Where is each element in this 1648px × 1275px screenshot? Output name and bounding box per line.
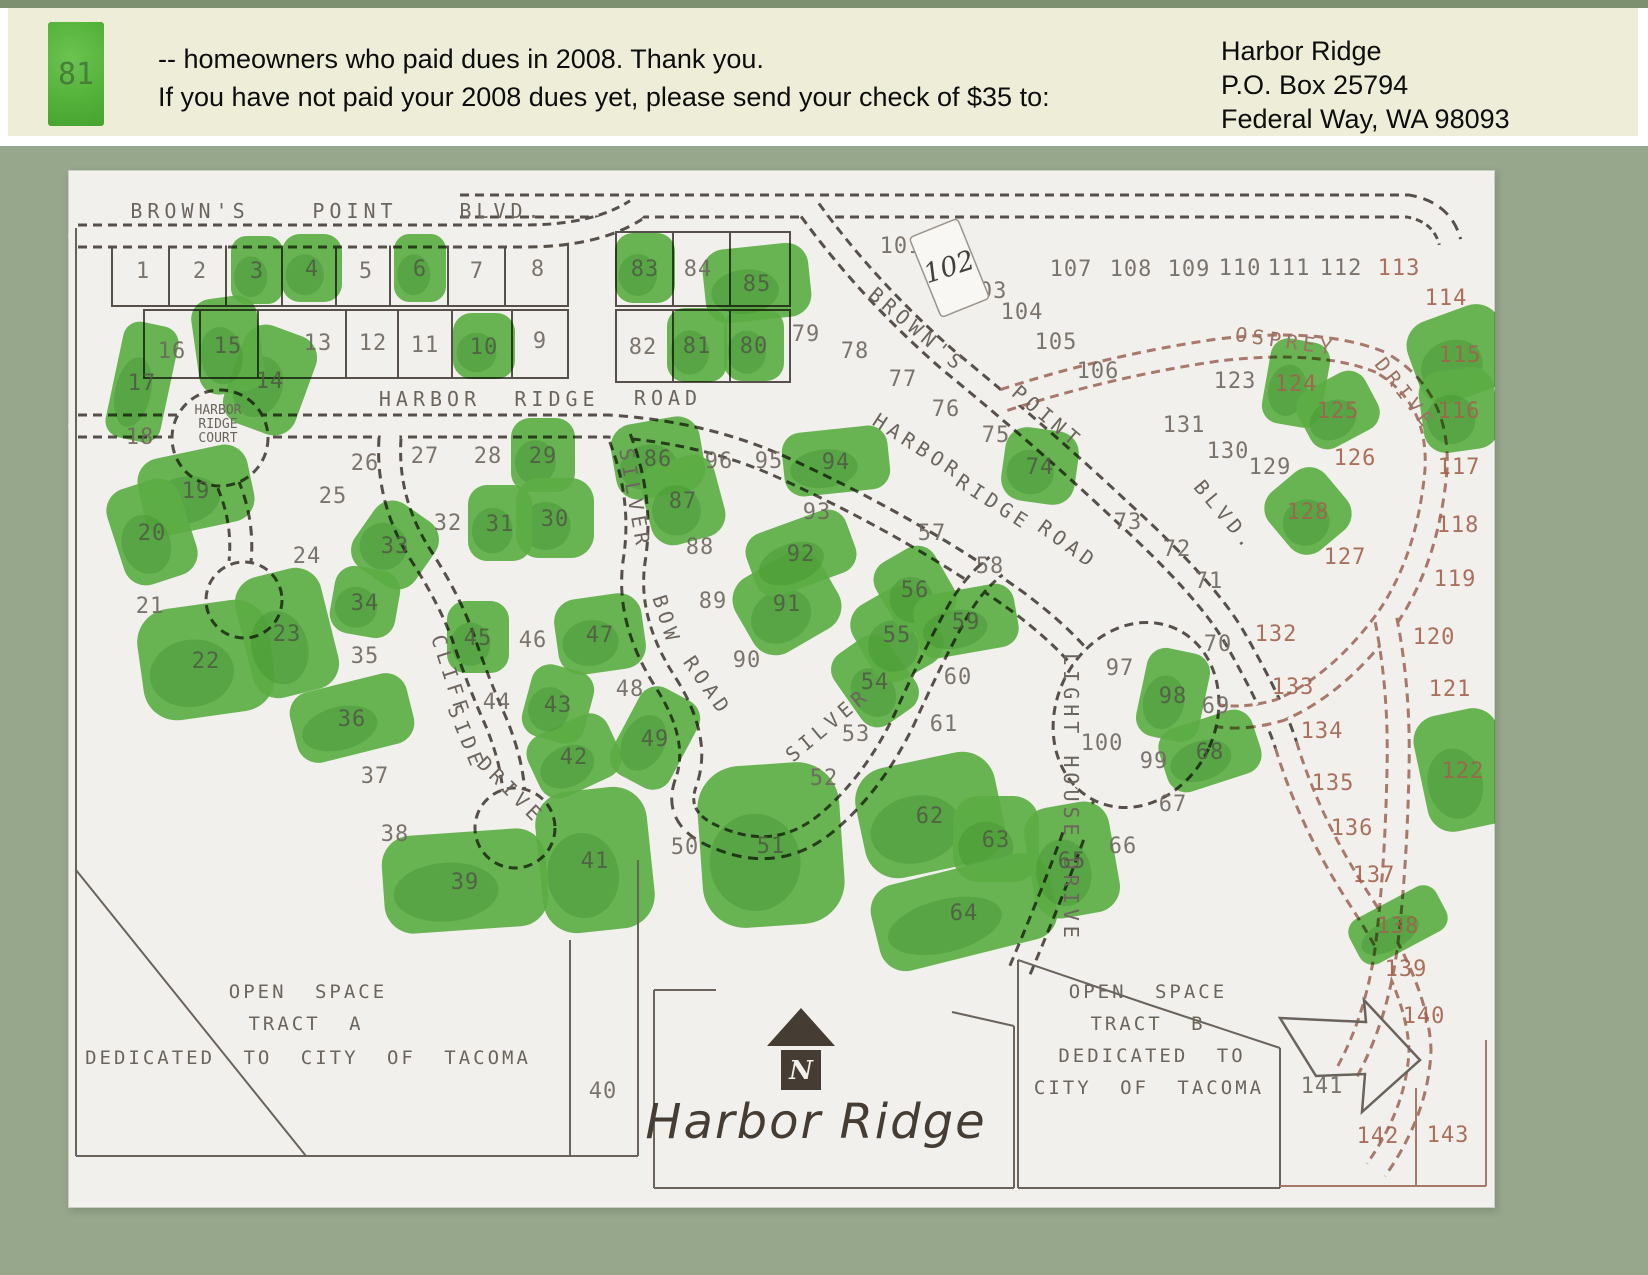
street-label: BROWN'S [130,199,249,223]
lot-number-50: 50 [671,835,700,860]
lot-number-91: 91 [773,592,802,617]
lot-number-124: 124 [1275,372,1318,397]
lot-number-23: 23 [273,622,302,647]
lot-number-83: 83 [631,257,660,282]
street-label: RIDGE [514,387,599,411]
lot-number-19: 19 [182,479,211,504]
lot-number-137: 137 [1353,863,1396,888]
lot-number-135: 135 [1312,771,1355,796]
lot-number-33: 33 [381,534,410,559]
lot-number-27: 27 [411,444,440,469]
lot-number-140: 140 [1403,1004,1446,1029]
open-space-label: TRACT B [1090,1013,1205,1035]
lot-number-49: 49 [641,727,670,752]
lot-number-18: 18 [126,425,155,450]
lot-number-79: 79 [792,322,821,347]
open-space-label: CITY OF TACOMA [1034,1077,1264,1099]
lot-number-93: 93 [803,500,832,525]
lot-number-31: 31 [486,512,515,537]
lot-number-40: 40 [589,1079,618,1104]
lot-number-25: 25 [319,484,348,509]
open-space-label: TRACT A [248,1013,363,1035]
lot-number-70: 70 [1204,632,1233,657]
lot-number-87: 87 [669,489,698,514]
lot-number-73: 73 [1114,510,1143,535]
lot-number-111: 111 [1268,256,1311,281]
lot-number-29: 29 [529,444,558,469]
lot-number-97: 97 [1106,656,1135,681]
lot-number-104: 104 [1001,300,1044,325]
lot-number-131: 131 [1163,413,1206,438]
lot-number-52: 52 [810,766,839,791]
lot-number-21: 21 [136,594,165,619]
lot-number-37: 37 [361,764,390,789]
lot-number-24: 24 [293,544,322,569]
lot-number-20: 20 [138,521,167,546]
lot-number-142: 142 [1357,1124,1400,1149]
lot-number-141: 141 [1301,1074,1344,1099]
street-label-court: RIDGE [198,417,237,432]
lot-number-56: 56 [901,578,930,603]
lot-number-116: 116 [1438,399,1481,424]
lot-number-84: 84 [684,257,713,282]
lot-number-75: 75 [982,423,1011,448]
lot-number-51: 51 [757,834,786,859]
header-line1: -- homeowners who paid dues in 2008. Tha… [158,44,764,75]
lot-number-98: 98 [1159,684,1188,709]
lot-number-105: 105 [1035,330,1078,355]
lot-number-8: 8 [531,257,545,282]
lot-number-74: 74 [1026,455,1055,480]
lot-number-127: 127 [1324,545,1367,570]
top-green-strip [0,0,1648,8]
lot-number-89: 89 [699,589,728,614]
lot-number-32: 32 [434,511,463,536]
lot-number-106: 106 [1077,359,1120,384]
lot-number-11: 11 [411,333,440,358]
lot-number-115: 115 [1439,343,1482,368]
lot-number-62: 62 [916,804,945,829]
plat-map-paper: NHarbor RidgeOPEN SPACETRACT ADEDICATED … [68,170,1495,1208]
lot-number-86: 86 [644,447,673,472]
lot-number-47: 47 [586,623,615,648]
lot-number-132: 132 [1255,622,1298,647]
lot-number-134: 134 [1301,719,1344,744]
lot-number-58: 58 [976,554,1005,579]
address-line-1: Harbor Ridge [1221,34,1510,68]
lot-number-92: 92 [787,542,816,567]
lot-number-108: 108 [1110,257,1153,282]
lot-number-4: 4 [305,257,319,282]
open-space-label: DEDICATED TO [1058,1045,1245,1067]
lot-number-118: 118 [1437,513,1480,538]
lot-number-88: 88 [686,535,715,560]
lot-number-12: 12 [359,331,388,356]
open-space-label: DEDICATED TO CITY OF TACOMA [85,1047,531,1069]
lot-number-28: 28 [474,444,503,469]
boundary-line [952,1012,1014,1026]
map-script-title: Harbor Ridge [645,1094,986,1150]
road-surface [1346,620,1398,1074]
hoa-mailing-address: Harbor Ridge P.O. Box 25794 Federal Way,… [1221,34,1510,136]
address-line-2: P.O. Box 25794 [1221,68,1510,102]
lot-number-94: 94 [822,450,851,475]
street-label-court: COURT [198,431,237,446]
lot-number-126: 126 [1334,446,1377,471]
lot-number-3: 3 [250,259,264,284]
lot-number-1: 1 [136,259,150,284]
lot-number-9: 9 [533,329,547,354]
lot-number-80: 80 [740,334,769,359]
lot-number-64: 64 [950,901,979,926]
open-space-label: OPEN SPACE [229,981,387,1003]
lot-number-107: 107 [1050,257,1093,282]
lot-number-122: 122 [1442,759,1485,784]
lot-number-66: 66 [1109,834,1138,859]
header-banner: 81 -- homeowners who paid dues in 2008. … [8,8,1638,136]
street-label: ROAD [1033,515,1102,574]
lot-number-114: 114 [1425,286,1468,311]
lot-number-34: 34 [351,591,380,616]
lot-number-15: 15 [214,334,243,359]
lot-number-136: 136 [1331,816,1374,841]
lot-number-128: 128 [1287,500,1330,525]
lot-number-77: 77 [889,367,918,392]
lot-number-54: 54 [861,670,890,695]
lot-number-36: 36 [338,707,367,732]
lot-number-133: 133 [1272,675,1315,700]
lot-number-14: 14 [256,369,285,394]
lot-number-76: 76 [932,397,961,422]
lot-number-71: 71 [1195,569,1224,594]
lot-number-143: 143 [1427,1123,1470,1148]
lot-number-109: 109 [1168,257,1211,282]
lot-number-17: 17 [128,371,157,396]
lot-number-112: 112 [1320,256,1363,281]
lot-number-26: 26 [351,451,380,476]
street-label: BLVD. [1189,475,1262,556]
lot-number-30: 30 [541,507,570,532]
lot-number-125: 125 [1317,399,1360,424]
plat-map: NHarbor RidgeOPEN SPACETRACT ADEDICATED … [68,170,1495,1208]
lot-number-46: 46 [519,628,548,653]
lot-number-68: 68 [1196,740,1225,765]
lot-number-16: 16 [158,339,187,364]
street-label: BLVD. [459,199,544,223]
lot-number-7: 7 [470,259,484,284]
lot-number-59: 59 [952,610,981,635]
north-arrow-icon [767,1008,835,1046]
lot-number-44: 44 [483,690,512,715]
lot-number-120: 120 [1413,625,1456,650]
lot-number-35: 35 [351,644,380,669]
lot-number-45: 45 [464,626,493,651]
north-letter: N [788,1056,814,1086]
lot-number-113: 113 [1378,256,1421,281]
address-line-3: Federal Way, WA 98093 [1221,102,1510,136]
paid-legend-number: 81 [58,57,94,92]
open-space-label: OPEN SPACE [1069,981,1227,1003]
lot-number-55: 55 [883,623,912,648]
lot-number-129: 129 [1249,455,1292,480]
lot-number-57: 57 [918,521,947,546]
lot-number-121: 121 [1429,677,1472,702]
lot-number-78: 78 [841,339,870,364]
lot-number-90: 90 [733,648,762,673]
street-label: HARBOR [379,387,481,411]
lot-number-13: 13 [304,331,333,356]
lot-number-138: 138 [1377,914,1420,939]
lot-number-130: 130 [1207,439,1250,464]
page: { "header": { "legend_number": "81", "li… [0,0,1648,1275]
lot-number-123: 123 [1214,369,1257,394]
lot-number-41: 41 [581,849,610,874]
lot-number-99: 99 [1140,749,1169,774]
lot-number-48: 48 [616,677,645,702]
lot-number-53: 53 [842,722,871,747]
street-label: LIGHT HOUSE DRIVE [1059,653,1083,943]
lot-number-60: 60 [944,665,973,690]
lot-number-82: 82 [629,335,658,360]
lot-number-42: 42 [560,745,589,770]
street-label: POINT [312,199,397,223]
lot-number-110: 110 [1219,256,1262,281]
lot-number-39: 39 [451,870,480,895]
lot-number-43: 43 [544,693,573,718]
lot-number-95: 95 [755,449,784,474]
lot-number-85: 85 [743,272,772,297]
lot-number-61: 61 [930,712,959,737]
lot-number-67: 67 [1159,792,1188,817]
lot-number-117: 117 [1438,455,1481,480]
lot-number-65: 65 [1058,849,1087,874]
street-label: ROAD [634,386,702,410]
lot-number-6: 6 [413,257,427,282]
lot-number-63: 63 [982,828,1011,853]
lot-number-2: 2 [193,259,207,284]
lot-number-5: 5 [359,259,373,284]
header-line2: If you have not paid your 2008 dues yet,… [158,82,1050,113]
paid-legend-swatch: 81 [48,22,104,126]
lot-number-10: 10 [470,335,499,360]
street-label-court: HARBOR [195,403,242,418]
lot-number-81: 81 [683,334,712,359]
lot-number-22: 22 [192,649,221,674]
lot-number-96: 96 [705,449,734,474]
lot-number-72: 72 [1163,537,1192,562]
lot-number-69: 69 [1202,694,1231,719]
lot-number-38: 38 [381,822,410,847]
lot-number-100: 100 [1081,731,1124,756]
lot-number-119: 119 [1434,567,1477,592]
lot-number-139: 139 [1385,957,1428,982]
